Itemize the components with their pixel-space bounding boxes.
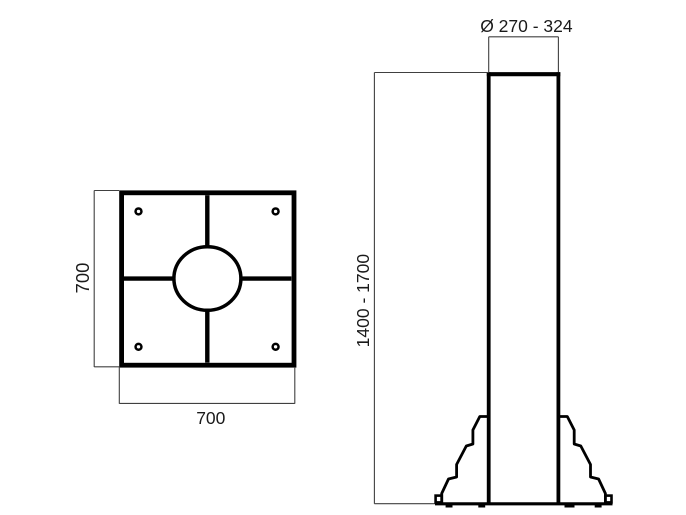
svg-text:700: 700 bbox=[72, 263, 93, 294]
svg-text:700: 700 bbox=[196, 408, 225, 428]
svg-text:1400 - 1700: 1400 - 1700 bbox=[353, 254, 373, 348]
svg-text:Ø 270 - 324: Ø 270 - 324 bbox=[480, 16, 573, 36]
